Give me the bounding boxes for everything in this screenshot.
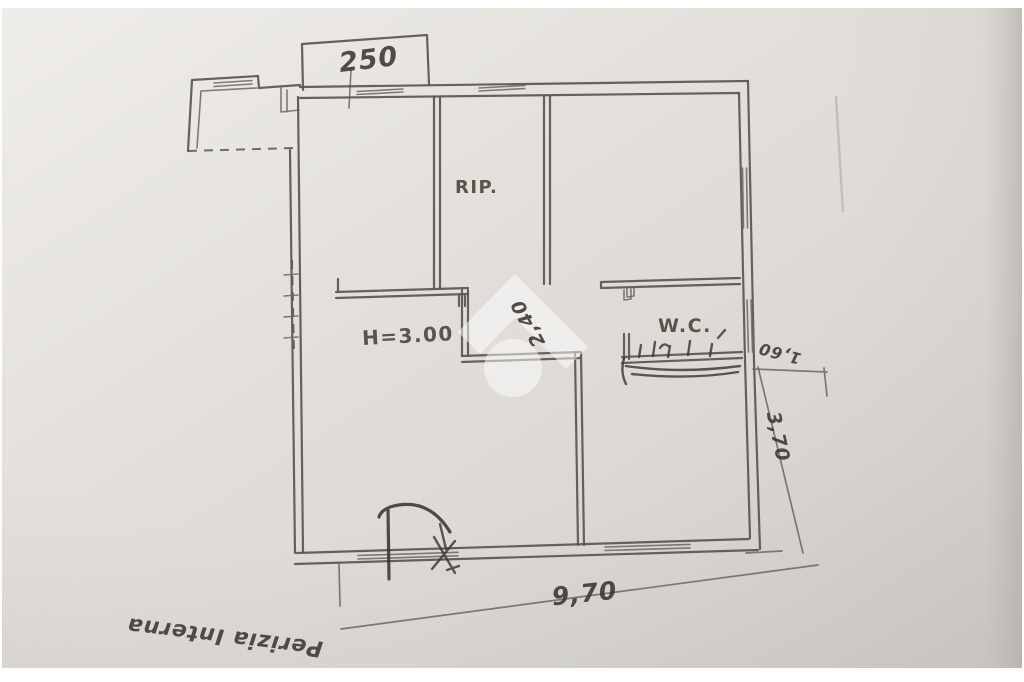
paper-photo — [2, 8, 1022, 668]
floor-plan-svg: RIP. W.C. H=3.00 250 9,70 3,70 1,60 2,40… — [0, 0, 1024, 682]
height-label: H=3.00 — [361, 321, 454, 350]
room-label-wc: W.C. — [658, 315, 712, 337]
scanned-floor-plan-photo: RIP. W.C. H=3.00 250 9,70 3,70 1,60 2,40… — [0, 0, 1024, 682]
room-label-rip: RIP. — [455, 177, 498, 198]
